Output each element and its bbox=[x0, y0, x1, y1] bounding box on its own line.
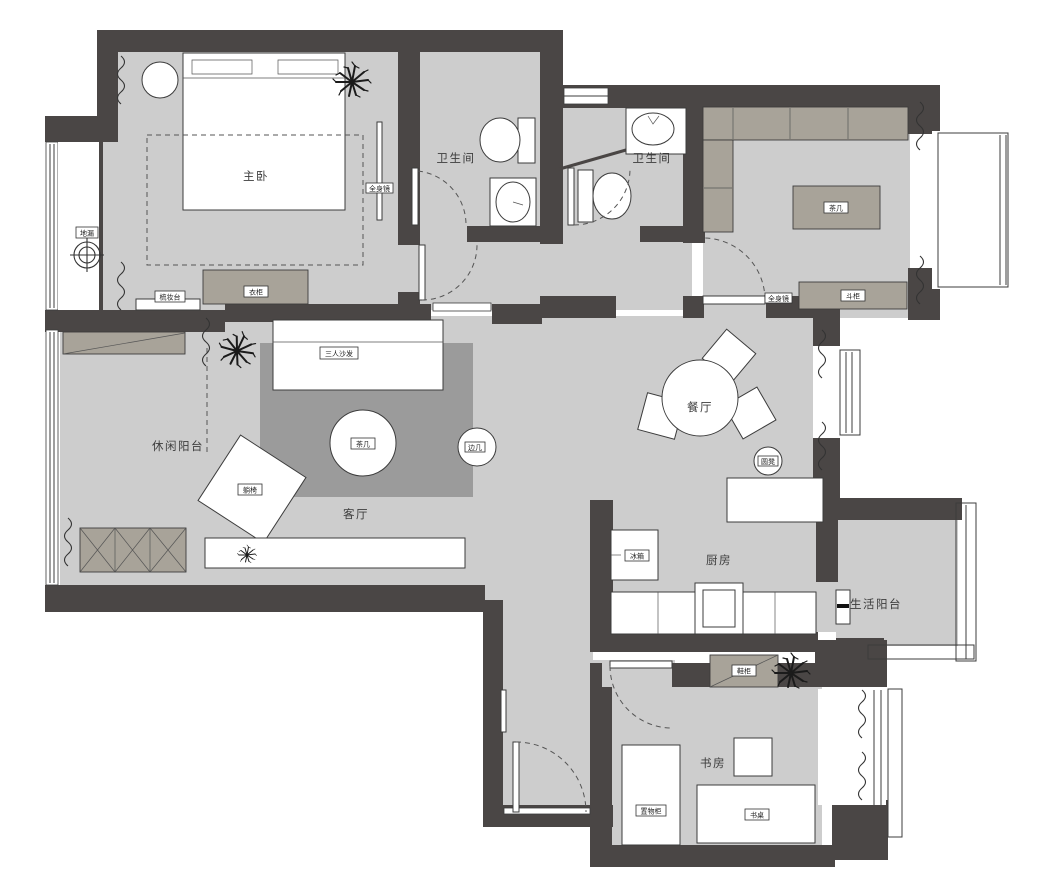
toilet-icon-2 bbox=[593, 173, 631, 219]
bench-cabinet-top bbox=[703, 107, 908, 140]
label-shoe-cabinet: 鞋柜 bbox=[737, 667, 751, 676]
window-west-balcony bbox=[46, 330, 58, 585]
label-dressing-table: 梳妆台 bbox=[160, 293, 181, 302]
door-study bbox=[610, 661, 672, 668]
toilet-tank-icon-2 bbox=[578, 170, 593, 222]
toilet-icon bbox=[480, 118, 520, 162]
label-coffee-table: 茶几 bbox=[356, 440, 370, 449]
door-master bbox=[419, 245, 425, 300]
room-label-master: 主卧 bbox=[243, 170, 269, 183]
label-master-mirror: 全身镜 bbox=[369, 184, 390, 193]
room-label-living: 客厅 bbox=[343, 507, 369, 521]
door-bath-guest bbox=[568, 168, 574, 225]
door-bath-main bbox=[412, 168, 418, 225]
door-entry bbox=[513, 742, 519, 812]
label-lounge-chair: 躺椅 bbox=[243, 486, 257, 495]
desk-chair bbox=[734, 738, 772, 776]
bench-cabinet-left bbox=[703, 140, 733, 232]
room-label-leisure-balcony: 休闲阳台 bbox=[152, 439, 204, 453]
bedside-chair bbox=[142, 62, 178, 98]
room-label-service-balcony: 生活阳台 bbox=[850, 597, 902, 611]
bed bbox=[183, 53, 345, 210]
label-tea-mirror: 全身镜 bbox=[768, 294, 789, 303]
storage-boxes bbox=[80, 528, 186, 572]
dining-table bbox=[662, 360, 738, 436]
label-storage-cabinet: 置物柜 bbox=[641, 807, 662, 816]
hall-mirror bbox=[501, 690, 506, 732]
label-floor-drain: 地漏 bbox=[80, 229, 94, 238]
room-label-kitchen: 厨房 bbox=[706, 554, 732, 567]
label-desk: 书桌 bbox=[750, 811, 764, 820]
floor-plan-page: 主卧 卫生间 卫生间 休闲阳台 客厅 餐厅 厨房 生活阳台 书房 衣柜 梳妆台 … bbox=[0, 0, 1046, 891]
toilet-tank-icon bbox=[518, 118, 535, 163]
label-fridge: 冰箱 bbox=[630, 552, 644, 561]
label-tea-cabinet: 斗柜 bbox=[846, 292, 860, 301]
room-label-study: 书房 bbox=[700, 757, 726, 770]
room-label-bath-main: 卫生间 bbox=[437, 151, 476, 165]
label-side-table: 边几 bbox=[468, 443, 482, 452]
sideboard bbox=[727, 478, 823, 522]
label-sofa: 三人沙发 bbox=[325, 349, 353, 358]
sink bbox=[695, 583, 743, 634]
room-label-bath-guest: 卫生间 bbox=[633, 151, 672, 165]
full-mirror bbox=[377, 122, 382, 220]
bay-window-study bbox=[818, 689, 886, 805]
label-wardrobe: 衣柜 bbox=[249, 288, 263, 297]
label-dining-stool: 圆凳 bbox=[761, 457, 775, 466]
window-west-master bbox=[46, 142, 58, 310]
floor-plan: 主卧 卫生间 卫生间 休闲阳台 客厅 餐厅 厨房 生活阳台 书房 衣柜 梳妆台 … bbox=[0, 0, 1046, 891]
washbasin-counter-2 bbox=[626, 108, 686, 154]
threshold bbox=[433, 303, 491, 311]
label-tea-table: 茶几 bbox=[829, 204, 843, 213]
storage-cabinet bbox=[622, 745, 680, 845]
window-dining bbox=[813, 346, 840, 438]
room-label-dining: 餐厅 bbox=[687, 400, 713, 414]
door-tea-room bbox=[703, 296, 765, 304]
